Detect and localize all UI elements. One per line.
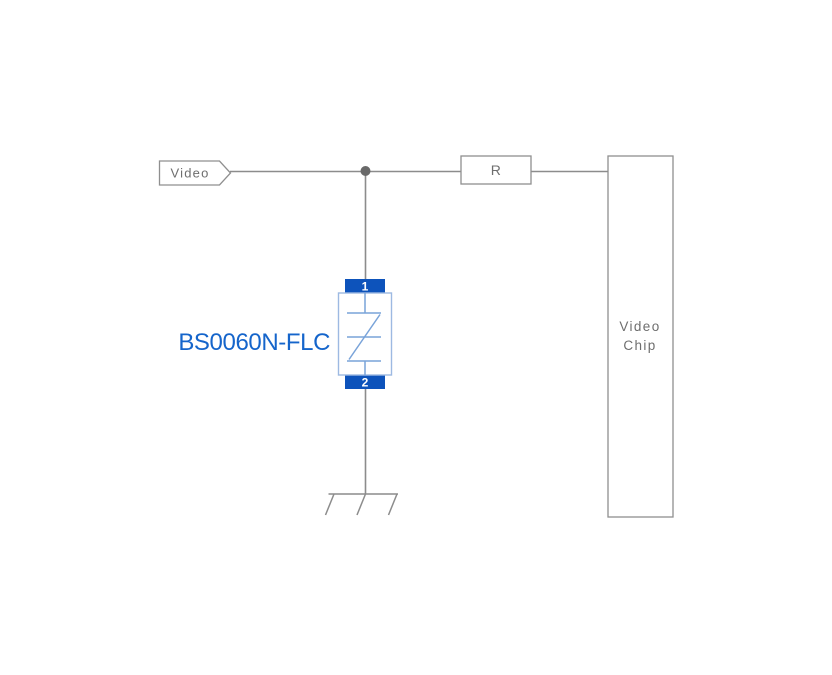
resistor-label: R [491,162,502,178]
net-tag-video: Video [160,161,231,185]
tvs-part-number: BS0060N-FLC [178,329,330,356]
circuit-diagram: Video R Video Chip 1 [0,0,832,675]
junction-dot [361,166,371,176]
ground-symbol-icon [326,494,399,515]
tvs-pin1-label: 1 [362,280,369,294]
schematic-canvas: Video R Video Chip 1 [0,0,832,675]
resistor: R [461,156,531,184]
video-chip-label-line2: Chip [623,338,656,353]
net-tag-label: Video [170,166,209,181]
video-chip-label-line1: Video [619,319,660,334]
ground-slash-right [389,494,398,515]
tvs-diode: 1 2 BS0060N-FLC [178,279,391,390]
tvs-pin2-label: 2 [362,376,369,390]
video-chip: Video Chip [608,156,673,517]
ground-slash-left [326,494,335,515]
ground-slash-middle [357,494,366,515]
video-chip-body [608,156,673,517]
